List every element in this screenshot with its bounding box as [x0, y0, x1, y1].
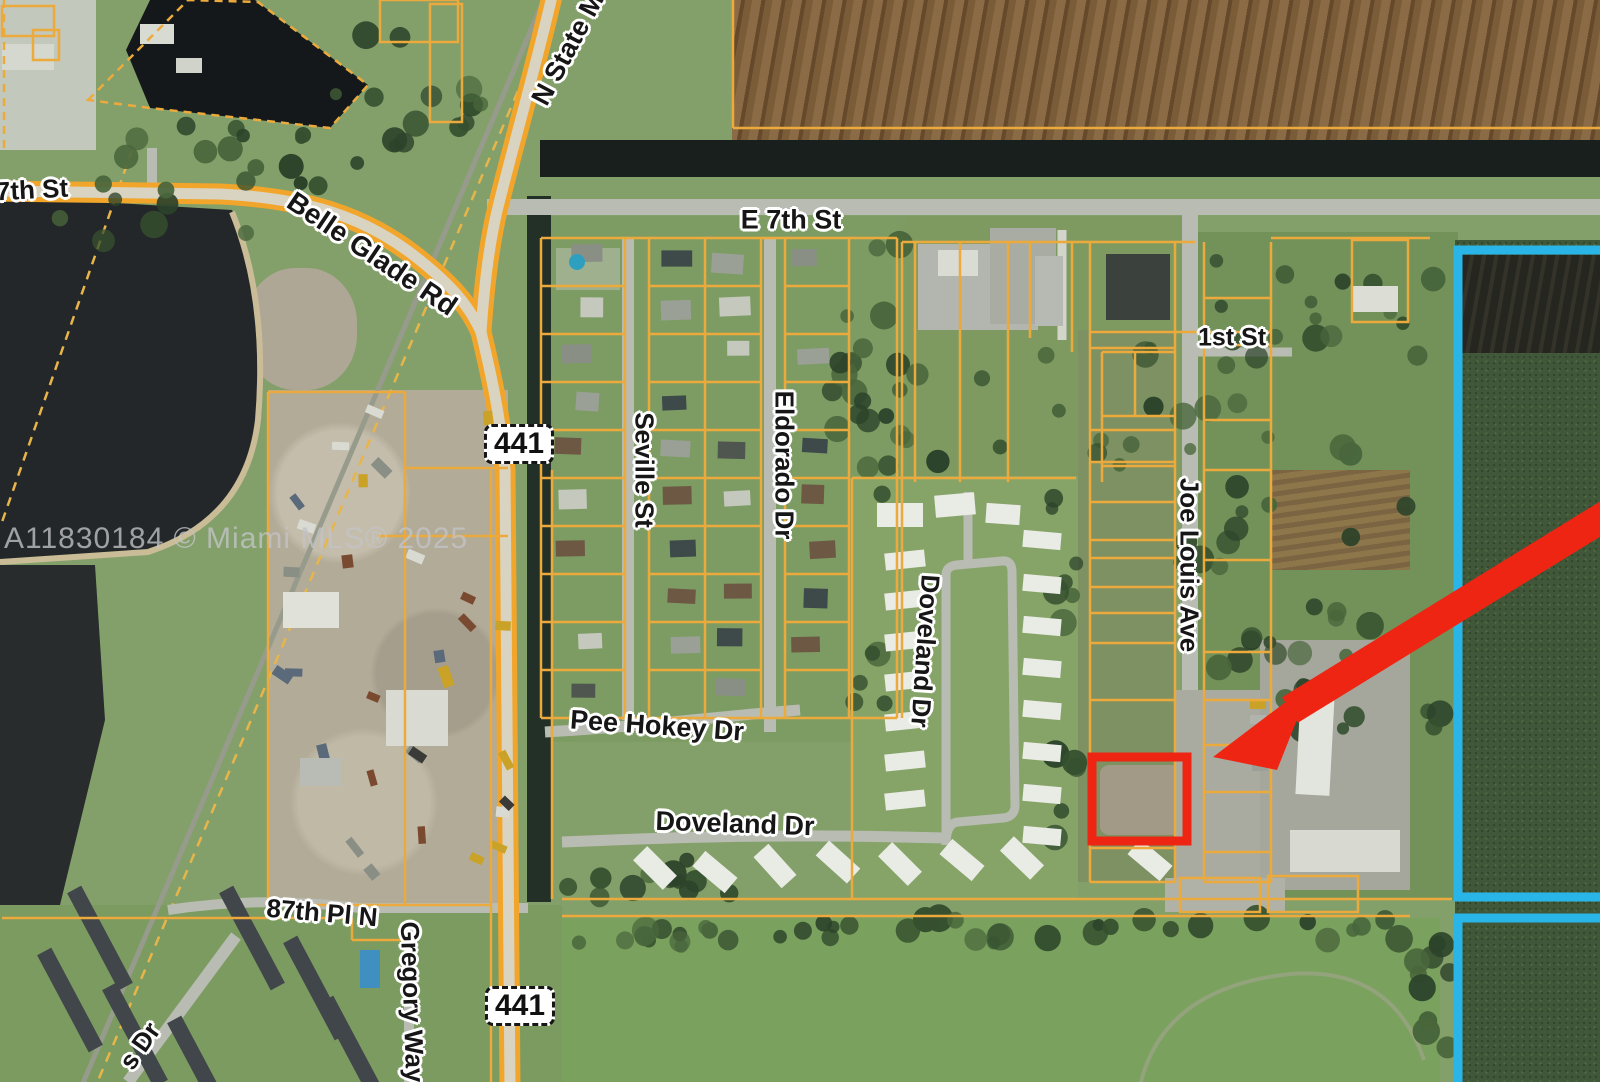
mobile-home: [754, 844, 797, 889]
tree: [1429, 936, 1446, 953]
house-roof: [556, 540, 585, 556]
roadside-canal: [527, 196, 551, 902]
house-roof: [575, 392, 599, 412]
mobile-home: [934, 492, 976, 517]
label-7th-st: 7th St: [0, 173, 69, 208]
junkyard-items: [272, 404, 515, 881]
house-roof: [803, 588, 828, 608]
tree: [330, 88, 342, 100]
house-roof: [661, 250, 692, 266]
junk-vehicle: [458, 613, 477, 632]
tree: [1288, 641, 1313, 666]
tree: [279, 154, 304, 179]
tree: [1069, 557, 1083, 571]
mobile-home: [1022, 784, 1061, 804]
junk-vehicle: [417, 826, 426, 844]
house-roof: [719, 296, 751, 316]
tree: [590, 887, 610, 907]
tree: [878, 455, 898, 475]
building: [386, 690, 448, 746]
tree: [1310, 312, 1322, 324]
tree: [886, 231, 913, 258]
tree: [794, 922, 812, 940]
tree: [1225, 475, 1249, 499]
mobile-home: [878, 842, 922, 886]
tree: [1052, 404, 1066, 418]
label-gregory-way: Gregory Way: [394, 921, 431, 1082]
apartment-roof: [67, 886, 133, 991]
tree: [1306, 598, 1323, 615]
field-track-curve: [1140, 973, 1424, 1082]
tree: [1407, 346, 1427, 366]
house-roof: [802, 438, 828, 454]
tree: [849, 404, 869, 424]
tree: [840, 309, 854, 323]
mobile-home: [884, 789, 926, 810]
tree: [295, 127, 311, 143]
house-roof: [561, 344, 591, 363]
tree: [718, 930, 739, 951]
tree: [1413, 1018, 1440, 1045]
parcel: [2, 6, 54, 36]
tree: [1305, 296, 1318, 309]
tree: [1397, 497, 1416, 516]
tree: [669, 931, 690, 952]
tree: [620, 875, 646, 901]
tree: [1035, 925, 1061, 951]
tree: [857, 456, 879, 478]
mobile-home: [1022, 826, 1061, 846]
tree: [1342, 528, 1361, 547]
tree: [1235, 505, 1248, 518]
tree: [390, 27, 411, 48]
tree: [421, 86, 443, 108]
mobile-home: [985, 503, 1020, 525]
tree: [892, 382, 908, 398]
apartment-roof: [319, 996, 385, 1082]
junk-vehicle: [437, 665, 454, 688]
tree: [194, 140, 218, 164]
tree: [1352, 917, 1371, 936]
tree: [1123, 436, 1140, 453]
junk-vehicle: [469, 852, 485, 865]
tree: [95, 175, 112, 192]
building: [283, 592, 339, 628]
house-roof: [715, 678, 745, 696]
route-shield-441-north: 441: [484, 424, 554, 464]
tree: [1206, 655, 1232, 681]
mobile-home: [1022, 742, 1061, 762]
tree: [878, 408, 894, 424]
tree: [114, 145, 138, 169]
tree: [1421, 267, 1446, 292]
tree: [1241, 627, 1262, 648]
building: [2, 44, 54, 70]
tree: [1132, 908, 1155, 931]
tree: [1244, 905, 1270, 931]
mls-watermark: A11830184 © Miami MLS® 2025: [4, 522, 468, 556]
junk-vehicle: [289, 493, 305, 510]
junk-vehicle: [366, 769, 377, 786]
junk-vehicle: [358, 474, 367, 487]
junk-vehicle: [495, 621, 511, 631]
tree: [140, 211, 168, 239]
junk-vehicle: [366, 691, 381, 703]
label-doveland-dr-horizontal: Doveland Dr: [655, 806, 815, 843]
tree: [870, 302, 898, 330]
tree: [853, 338, 873, 358]
building: [1106, 254, 1170, 320]
house-roof: [809, 540, 836, 559]
tree: [1337, 722, 1349, 734]
tree: [572, 936, 586, 950]
tree: [926, 450, 949, 473]
tree: [1320, 325, 1342, 347]
tree: [1261, 497, 1277, 513]
tree: [352, 21, 380, 49]
label-1st-st: 1st St: [1198, 324, 1266, 353]
tree: [559, 878, 577, 896]
building: [1352, 286, 1398, 312]
tree: [309, 176, 328, 195]
tree: [869, 239, 886, 256]
tree: [177, 117, 196, 136]
tree: [679, 880, 699, 900]
tree: [158, 182, 175, 199]
house-roof: [580, 297, 603, 317]
tree: [1046, 502, 1059, 515]
building: [176, 58, 202, 73]
tree: [449, 117, 469, 137]
house-roof: [711, 253, 744, 275]
apartment-roof: [167, 1016, 233, 1082]
tree: [1062, 750, 1087, 775]
tree: [456, 76, 482, 102]
house-roof: [670, 540, 696, 558]
tree: [993, 440, 1008, 455]
label-eldorado-dr: Eldorado Dr: [769, 391, 800, 540]
tree: [108, 193, 122, 207]
tree: [1356, 612, 1384, 640]
house-roof: [571, 684, 595, 698]
mobile-home: [884, 750, 926, 771]
tree: [1375, 910, 1395, 930]
doveland-loop-road: [946, 561, 1015, 845]
subject-parcel-outline: [1092, 757, 1187, 841]
mobile-home: [1022, 700, 1061, 720]
tree: [1163, 921, 1179, 937]
tree: [236, 129, 250, 143]
building: [1290, 830, 1400, 872]
tree: [877, 695, 893, 711]
tree: [974, 370, 990, 386]
label-seville-st: Seville St: [629, 412, 660, 528]
tree: [590, 867, 611, 888]
tree: [1264, 642, 1287, 665]
tree: [1315, 928, 1340, 953]
aerial-map: A11830184 © Miami MLS® 2025 7th St Belle…: [0, 0, 1600, 1082]
tree: [1409, 974, 1436, 1001]
junk-vehicle: [363, 863, 380, 881]
junk-vehicle: [345, 837, 364, 858]
tree: [616, 931, 634, 949]
house-roof: [661, 300, 692, 321]
route-shield-441-south: 441: [485, 986, 555, 1026]
house-roof: [801, 484, 824, 504]
tree: [987, 923, 1014, 950]
canal: [540, 140, 1600, 177]
building: [1035, 256, 1063, 326]
junk-vehicle: [332, 442, 349, 450]
tree: [964, 928, 987, 951]
mobile-home: [939, 839, 984, 881]
tree: [350, 156, 364, 170]
tree: [92, 229, 115, 252]
tree: [1038, 347, 1055, 364]
tree: [679, 853, 694, 868]
tree: [364, 88, 383, 107]
muck-field-2: [0, 565, 105, 905]
house-roof: [797, 348, 830, 365]
tree: [403, 111, 429, 137]
house-roof: [663, 486, 692, 505]
mobile-home: [1022, 616, 1061, 636]
building: [938, 250, 978, 276]
tree: [1385, 925, 1413, 953]
pool-2: [360, 950, 380, 988]
house-roof: [667, 588, 696, 604]
tree: [898, 431, 915, 448]
mobile-home: [877, 503, 923, 527]
tree: [1335, 274, 1351, 290]
junk-vehicle: [371, 457, 393, 479]
tree: [634, 926, 654, 946]
tree: [874, 486, 891, 503]
tree: [947, 912, 964, 929]
tree: [852, 675, 868, 691]
tree: [1054, 803, 1070, 819]
listing-boundaries: [1458, 250, 1600, 1082]
junk-vehicle: [433, 649, 445, 663]
house-roof: [727, 341, 749, 356]
tree: [896, 918, 920, 942]
tree: [827, 921, 839, 933]
boundary-rect-south: [1458, 918, 1600, 1082]
tree: [1228, 393, 1248, 413]
tree: [52, 210, 68, 226]
junk-vehicle: [341, 554, 353, 568]
mobile-home: [1022, 658, 1061, 678]
swimming-pool: [569, 254, 585, 270]
building: [140, 24, 174, 44]
mobile-home: [1022, 530, 1061, 550]
house-roof: [662, 395, 687, 410]
house-roof: [558, 489, 587, 509]
house-roof: [718, 441, 746, 459]
building: [1250, 700, 1266, 709]
tree: [1404, 948, 1430, 974]
building: [300, 758, 342, 786]
apartment-roof: [37, 948, 103, 1053]
tree: [1215, 300, 1228, 313]
tree: [1102, 919, 1118, 935]
house-roof: [724, 584, 752, 599]
junk-vehicle: [283, 567, 300, 578]
tree: [1261, 431, 1274, 444]
house-roof: [660, 440, 690, 458]
mobile-home: [1022, 574, 1061, 594]
tree: [1224, 517, 1248, 541]
tree: [701, 922, 718, 939]
mobile-home: [884, 549, 926, 570]
house-roof: [717, 628, 743, 646]
tree: [906, 363, 928, 385]
tree: [1327, 602, 1346, 621]
tree: [1184, 443, 1196, 455]
tree: [247, 159, 264, 176]
mobile-home: [816, 841, 861, 884]
tree: [1210, 254, 1224, 268]
tree: [773, 930, 787, 944]
tree: [1425, 718, 1442, 735]
house-roof: [791, 249, 816, 266]
tree: [865, 646, 880, 661]
label-e-7th-st: E 7th St: [741, 205, 842, 236]
tree: [1194, 395, 1221, 422]
tree: [840, 916, 858, 934]
tree: [238, 225, 254, 241]
junk-vehicle: [285, 668, 303, 677]
tree: [1276, 265, 1295, 284]
tree: [1330, 434, 1357, 461]
house-roof: [671, 636, 701, 653]
label-joe-louis-ave: Joe Louis Ave: [1174, 478, 1205, 652]
junk-vehicle: [460, 592, 476, 605]
house-roof: [791, 637, 820, 653]
house-roof: [724, 490, 751, 507]
tree: [394, 133, 414, 153]
tree: [1217, 356, 1235, 374]
house-roof: [578, 633, 602, 650]
house-roof: [554, 437, 581, 455]
tree: [1132, 341, 1158, 367]
tree: [1143, 397, 1163, 417]
